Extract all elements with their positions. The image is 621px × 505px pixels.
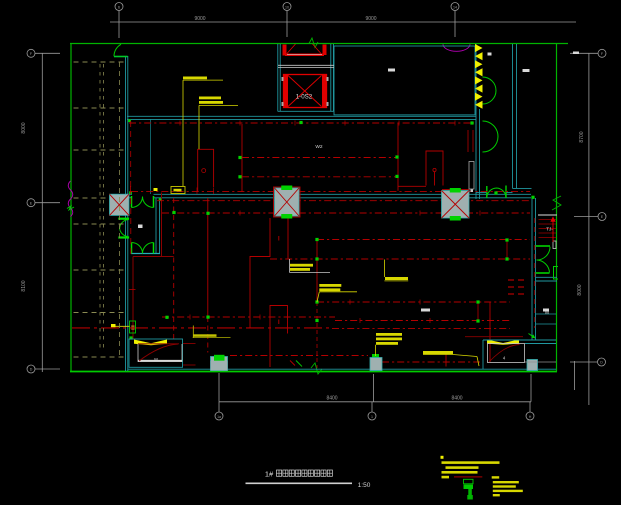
svg-text:8400: 8400 bbox=[326, 396, 337, 402]
svg-text:8000: 8000 bbox=[577, 284, 583, 295]
svg-text:8700: 8700 bbox=[579, 131, 585, 142]
svg-text:8100: 8100 bbox=[21, 280, 27, 291]
svg-text:9000: 9000 bbox=[365, 16, 376, 22]
svg-text:1a: 1a bbox=[217, 415, 221, 419]
svg-text:9000: 9000 bbox=[194, 16, 205, 22]
svg-text:D: D bbox=[600, 361, 603, 365]
svg-text:W2: W2 bbox=[315, 144, 323, 150]
svg-text:1:50: 1:50 bbox=[358, 482, 371, 489]
svg-text:1: 1 bbox=[371, 415, 373, 419]
svg-text:10: 10 bbox=[285, 6, 289, 10]
svg-text:M: M bbox=[154, 357, 158, 362]
svg-text:1-0S2: 1-0S2 bbox=[296, 94, 313, 101]
svg-text:8000: 8000 bbox=[21, 122, 27, 133]
svg-text:14: 14 bbox=[453, 6, 457, 10]
svg-text:H: H bbox=[529, 415, 532, 419]
svg-text:8400: 8400 bbox=[451, 396, 462, 402]
svg-text:1#: 1# bbox=[265, 470, 274, 479]
svg-text:D: D bbox=[30, 368, 33, 372]
svg-text:TJ-: TJ- bbox=[546, 227, 553, 232]
